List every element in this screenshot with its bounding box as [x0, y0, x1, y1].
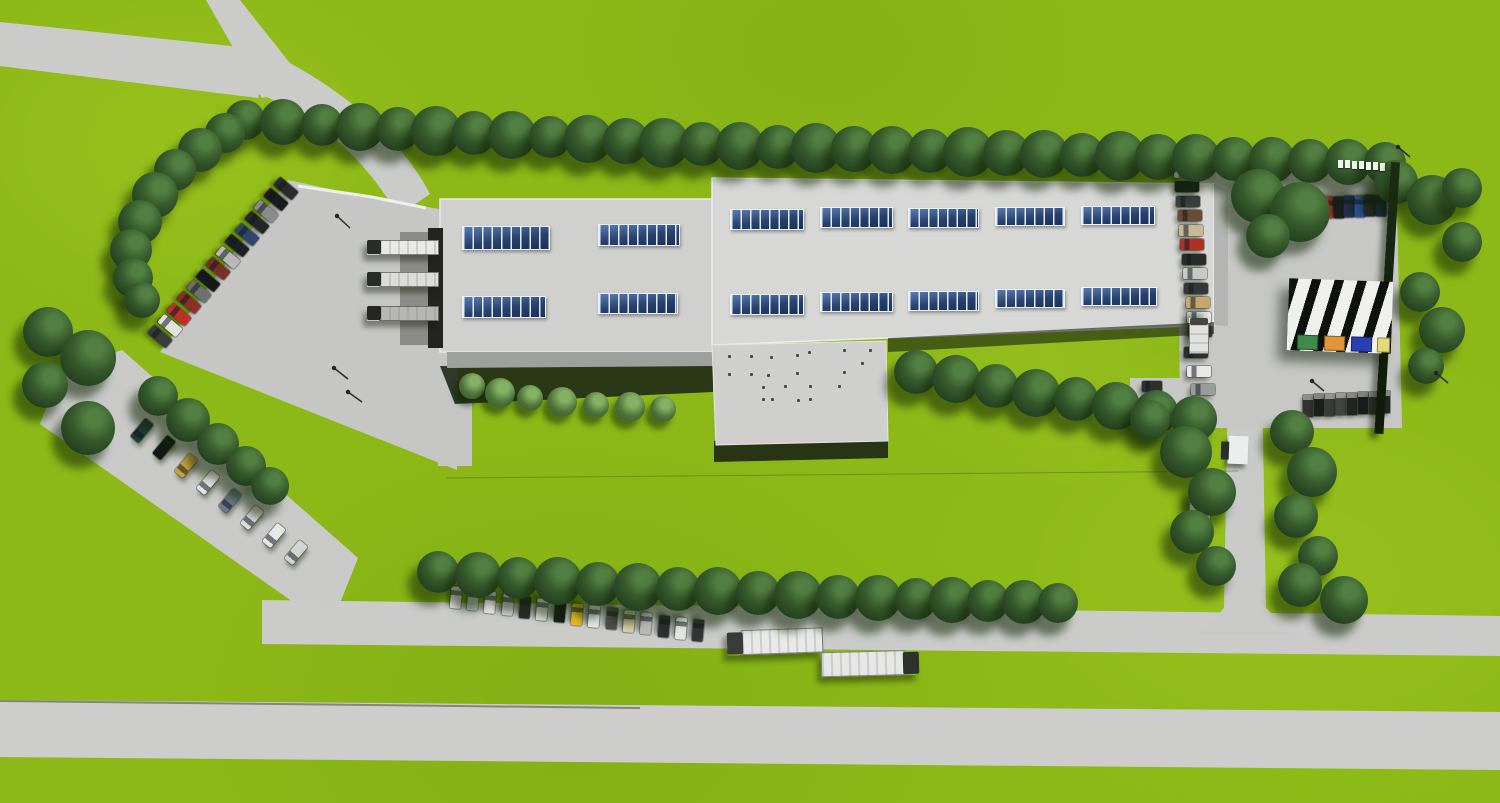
- gatehouse-shadow-side: [1221, 441, 1230, 459]
- bush: [485, 378, 515, 408]
- parked-car: [1175, 181, 1199, 192]
- parked-car: [1182, 254, 1206, 265]
- roof-vent: [770, 356, 773, 359]
- parked-car: [623, 610, 636, 633]
- parked-car: [640, 612, 653, 635]
- tree: [1246, 214, 1290, 258]
- parked-van: [1336, 393, 1346, 415]
- waste-bin-blue: [1351, 336, 1373, 352]
- parked-car: [218, 487, 242, 512]
- parked-van: [1325, 394, 1335, 416]
- roof-vent: [843, 371, 846, 374]
- roof-vent: [762, 386, 765, 389]
- roof-vent: [784, 385, 787, 388]
- fence-post: [1345, 160, 1350, 168]
- truck: [1189, 318, 1209, 354]
- truck: [367, 240, 439, 255]
- truck-cab: [1190, 318, 1208, 325]
- parked-car: [658, 615, 671, 638]
- truck-trailer: [821, 650, 906, 677]
- roof-vent: [838, 385, 841, 388]
- waste-bin-green: [1297, 335, 1319, 351]
- fence-post: [1359, 161, 1364, 169]
- tree: [1442, 168, 1482, 208]
- truck: [821, 649, 920, 677]
- skylight-strip: [820, 292, 893, 312]
- tree: [1274, 494, 1318, 538]
- fence-post: [1366, 162, 1371, 170]
- parked-car: [1180, 239, 1204, 250]
- tree: [1320, 576, 1368, 624]
- bush: [459, 373, 485, 399]
- parked-van: [1314, 394, 1324, 416]
- bush: [547, 387, 577, 417]
- roof-vent: [771, 398, 774, 401]
- truck-cab: [903, 651, 920, 673]
- tree: [260, 99, 306, 145]
- skylight-strip: [462, 226, 550, 250]
- parked-car: [1186, 297, 1210, 308]
- skylight-strip: [908, 208, 979, 228]
- fence-post: [1373, 162, 1378, 170]
- truck: [367, 306, 439, 321]
- tree: [251, 467, 289, 505]
- tree: [1442, 222, 1482, 262]
- roof-vent: [796, 354, 799, 357]
- parked-car: [262, 522, 286, 547]
- truck-trailer: [379, 272, 439, 287]
- truck-cab: [727, 631, 744, 654]
- parked-car: [571, 603, 584, 626]
- roof-vent: [750, 373, 753, 376]
- parked-car: [1191, 384, 1215, 395]
- tree: [455, 552, 501, 598]
- parked-car: [1183, 268, 1207, 279]
- bush: [583, 392, 609, 418]
- fence-post: [1338, 160, 1343, 168]
- parked-car: [284, 539, 308, 564]
- skylight-strip: [730, 209, 804, 230]
- truck: [367, 272, 439, 287]
- tree: [816, 575, 860, 619]
- scene-objects: [0, 0, 1500, 803]
- bush: [650, 396, 676, 422]
- roof-vent: [809, 398, 812, 401]
- skylight-strip: [730, 294, 804, 315]
- roof-vent: [728, 355, 731, 358]
- roof-vent: [843, 349, 846, 352]
- tree: [1054, 377, 1098, 421]
- tree: [1188, 468, 1236, 516]
- parked-car: [1179, 225, 1203, 236]
- truck-cab: [367, 272, 381, 285]
- roof-vent: [796, 372, 799, 375]
- parked-car: [692, 619, 705, 642]
- parked-car: [1344, 195, 1355, 217]
- skylight-strip: [820, 207, 893, 228]
- parked-car: [606, 607, 619, 630]
- parked-car: [174, 452, 198, 477]
- site-aerial-view: [0, 0, 1500, 803]
- tree: [894, 350, 938, 394]
- parked-car: [130, 417, 154, 442]
- parked-car: [1187, 366, 1211, 377]
- parked-van: [1347, 393, 1357, 415]
- parked-car: [588, 605, 601, 628]
- skylight-strip: [1081, 206, 1155, 225]
- roof-vent: [869, 349, 872, 352]
- tree: [22, 362, 68, 408]
- tree: [1287, 447, 1337, 497]
- roof-vent: [809, 385, 812, 388]
- tree: [124, 282, 160, 318]
- tree: [1012, 369, 1060, 417]
- tree: [1130, 400, 1170, 440]
- truck: [727, 627, 824, 655]
- tree: [694, 567, 742, 615]
- truck-trailer: [379, 240, 439, 255]
- skylight-strip: [908, 291, 979, 311]
- tree: [1278, 563, 1322, 607]
- roof-vent: [861, 362, 864, 365]
- truck-trailer: [1189, 323, 1209, 354]
- roof-vent: [728, 373, 731, 376]
- truck-trailer: [741, 627, 824, 655]
- tree: [1400, 272, 1440, 312]
- tree: [497, 557, 539, 599]
- parked-car: [1178, 210, 1202, 221]
- parked-car: [196, 469, 220, 494]
- waste-recycling-shelter: [1287, 278, 1393, 354]
- fence-post: [1352, 161, 1357, 169]
- truck-cab: [367, 306, 381, 319]
- tree: [932, 355, 980, 403]
- gatehouse: [1228, 436, 1249, 465]
- parked-car: [1184, 283, 1208, 294]
- truck-trailer: [379, 306, 439, 321]
- parked-car: [675, 617, 688, 640]
- parked-car: [519, 596, 532, 619]
- bush: [615, 392, 645, 422]
- roof-vent: [762, 398, 765, 401]
- parked-car: [1176, 196, 1200, 207]
- tree: [1408, 348, 1444, 384]
- tree: [614, 563, 662, 611]
- tree: [417, 551, 459, 593]
- tree: [534, 557, 582, 605]
- skylight-strip: [995, 289, 1065, 308]
- tree: [60, 330, 116, 386]
- parked-car: [1365, 194, 1376, 216]
- waste-bin-yellow: [1377, 337, 1391, 352]
- roof-vent: [808, 351, 811, 354]
- parked-car: [152, 434, 176, 459]
- skylight-strip: [995, 207, 1065, 226]
- skylight-strip: [598, 293, 678, 314]
- tree: [774, 571, 822, 619]
- skylight-strip: [462, 296, 546, 318]
- roof-vent: [797, 399, 800, 402]
- parked-car: [240, 504, 264, 529]
- skylight-strip: [598, 224, 680, 246]
- tree: [974, 364, 1018, 408]
- bush: [517, 385, 543, 411]
- skylight-strip: [1081, 287, 1157, 306]
- tree: [1038, 583, 1078, 623]
- fence-post: [1380, 163, 1385, 171]
- roof-vent: [767, 374, 770, 377]
- tree: [61, 401, 115, 455]
- waste-bin-orange: [1324, 335, 1346, 351]
- parked-van: [1358, 392, 1368, 414]
- tree: [1196, 546, 1236, 586]
- truck-cab: [367, 240, 381, 253]
- tree: [1419, 307, 1465, 353]
- roof-vent: [750, 355, 753, 358]
